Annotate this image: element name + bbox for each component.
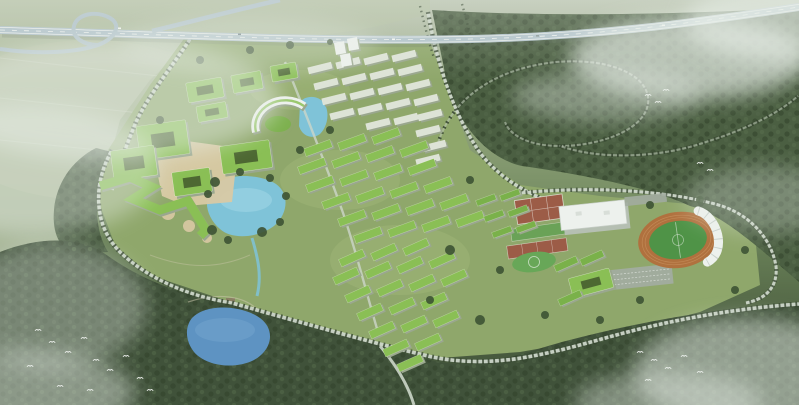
tree-cluster (541, 311, 549, 319)
tree-cluster (224, 236, 232, 244)
gym-rooftop-unit (575, 211, 581, 216)
south-lake-highlight (195, 318, 255, 342)
plaza-circle (183, 220, 195, 232)
tree-cluster (741, 246, 749, 254)
tree-cluster (426, 296, 434, 304)
mist-cloud (511, 70, 701, 122)
tree-cluster (296, 146, 304, 154)
tree-cluster (266, 174, 274, 182)
tree-cluster (282, 192, 290, 200)
tree-cluster (204, 190, 212, 198)
scene-svg (0, 0, 799, 405)
tree-cluster (257, 227, 267, 237)
tree-cluster (236, 168, 244, 176)
tree-cluster (646, 201, 654, 209)
tree-cluster (596, 316, 604, 324)
tree-cluster (466, 176, 474, 184)
tree-cluster (326, 126, 334, 134)
tree-cluster (636, 296, 644, 304)
tree-cluster (210, 177, 220, 187)
tree-cluster (731, 286, 739, 294)
tree-cluster (496, 266, 504, 274)
tree-cluster (276, 218, 284, 226)
mist-cloud (120, 17, 380, 73)
tree-cluster (445, 245, 455, 255)
tree-cluster (475, 315, 485, 325)
tree-cluster (207, 225, 217, 235)
gym-rooftop-unit (604, 210, 610, 215)
aerial-campus-rendering (0, 0, 799, 405)
